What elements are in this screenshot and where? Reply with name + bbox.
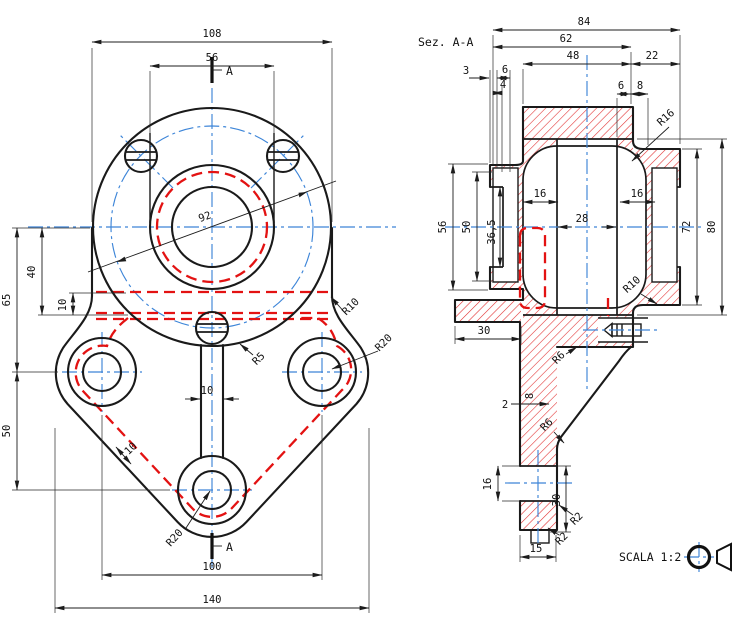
- technical-drawing: A A 108 56 65 40 10 50 100 140 10: [0, 0, 736, 622]
- dim-r20-bottom: R20: [164, 527, 186, 549]
- dim-10-plate: 10: [57, 299, 69, 312]
- dim-50-bearing: 50: [461, 221, 473, 234]
- dim-16-left: 16: [534, 188, 547, 200]
- dim-width-boss: 56: [206, 52, 219, 64]
- projection-cone-icon: [717, 544, 731, 570]
- dim-140: 140: [203, 594, 222, 606]
- dim-15: 15: [530, 543, 543, 555]
- dim-65: 65: [1, 294, 13, 307]
- dim-80: 80: [706, 221, 718, 234]
- dim-84: 84: [578, 16, 591, 28]
- dim-width-flange: 108: [203, 28, 222, 40]
- dim-8-depth: 8: [637, 80, 643, 92]
- dim-2: 2: [502, 399, 508, 411]
- dim-10-slant: 10: [122, 440, 139, 457]
- dim-100: 100: [203, 561, 222, 573]
- dim-16-foot: 16: [482, 478, 494, 491]
- scale-label: SCALA 1:2: [619, 550, 681, 564]
- section-title: Sez. A-A: [418, 35, 473, 49]
- dim-48: 48: [567, 50, 580, 62]
- dim-4: 4: [500, 79, 506, 91]
- dim-16-right: 16: [631, 188, 644, 200]
- dim-r10-body: R10: [340, 296, 362, 318]
- section-marker-bottom: A: [226, 540, 233, 554]
- dim-28: 28: [576, 213, 589, 225]
- dim-22: 22: [646, 50, 659, 62]
- dim-r2-a: R2: [568, 510, 585, 527]
- dim-8-wall: 8: [524, 393, 536, 399]
- dim-bolt-circle: 92: [197, 209, 213, 225]
- dim-62: 62: [560, 33, 573, 45]
- projection-symbol: [684, 542, 731, 572]
- dim-3: 3: [463, 65, 469, 77]
- footer: SCALA 1:2: [619, 542, 731, 572]
- foot-pad: [531, 530, 549, 543]
- dim-rib-width: 10: [201, 385, 214, 397]
- dim-r5-rib: R5: [250, 350, 267, 367]
- dim-30-arm: 30: [478, 325, 491, 337]
- dim-6-depth: 6: [618, 80, 624, 92]
- dim-r20-right: R20: [373, 332, 395, 354]
- dim-6-step: 6: [502, 64, 508, 76]
- dim-50: 50: [1, 425, 13, 438]
- dim-72: 72: [681, 221, 693, 234]
- front-view: A A 108 56 65 40 10 50 100 140 10: [1, 28, 396, 613]
- front-center-lines: [28, 88, 396, 568]
- section-view: Sez. A-A: [418, 16, 727, 562]
- dim-56-boss: 56: [437, 221, 449, 234]
- dim-r16: R16: [655, 107, 677, 129]
- dim-30-foot: 30: [551, 494, 563, 507]
- dim-40: 40: [26, 266, 38, 279]
- hidden-rib-outline: [76, 318, 351, 517]
- dim-36-5: 36,5: [486, 219, 498, 244]
